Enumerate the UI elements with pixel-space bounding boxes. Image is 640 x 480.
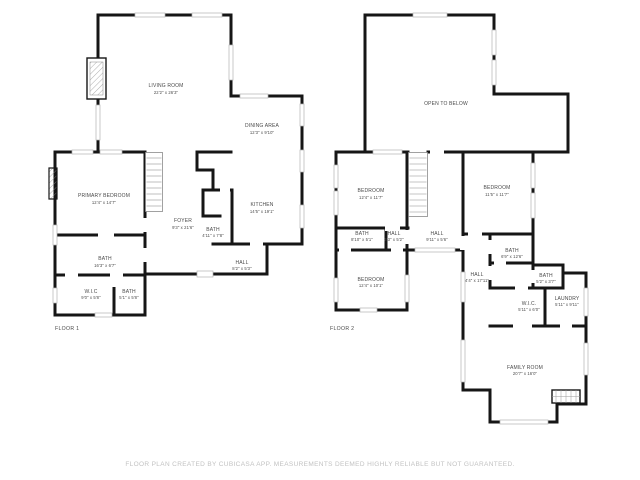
- room-dims-hall-f1: 8'2" x 5'3": [232, 266, 252, 271]
- room-label-bath-primary: BATH: [98, 256, 112, 262]
- room-dims-bath-big-f2: 6'9" x 12'6": [501, 254, 523, 259]
- room-label-bedroom-2: BEDROOM: [484, 185, 511, 191]
- room-dims-living-room: 22'2" x 26'3": [154, 90, 179, 95]
- floor-1-stairs: [146, 153, 163, 212]
- fireplace: [87, 58, 106, 99]
- room-label-dining-area: DINING AREA: [245, 123, 279, 129]
- room-label-foyer: FOYER: [174, 218, 192, 224]
- floor-2-stairs: [409, 153, 428, 217]
- family-room-stair-block: [552, 390, 580, 403]
- room-label-kitchen: KITCHEN: [251, 202, 274, 208]
- room-dims-wic-f2: 5'11" x 6'0": [518, 307, 540, 312]
- floor-plan-page: LIVING ROOM 22'2" x 26'3" DINING AREA 12…: [0, 0, 640, 480]
- room-dims-bedroom-2: 11'5" x 11'7": [485, 192, 509, 197]
- room-dims-hall-small: 3'3" x 5'2": [384, 237, 404, 242]
- floor-1-label: FLOOR 1: [55, 326, 79, 332]
- room-dims-bath-f2: 8'10" x 5'1": [351, 237, 373, 242]
- room-label-open-to-below: OPEN TO BELOW: [424, 101, 468, 107]
- floor-2-label: FLOOR 2: [330, 326, 354, 332]
- room-dims-primary-bedroom: 12'4" x 14'7": [92, 200, 117, 205]
- floor-plan-canvas: LIVING ROOM 22'2" x 26'3" DINING AREA 12…: [0, 0, 640, 480]
- room-dims-bedroom-3: 12'4" x 10'1": [359, 283, 384, 288]
- room-dims-foyer: 9'3" x 21'6": [172, 225, 194, 230]
- room-label-living-room: LIVING ROOM: [149, 83, 184, 89]
- room-dims-hall-center: 9'11" x 5'6": [426, 237, 448, 242]
- room-dims-bath-small-f1: 5'1" x 5'8": [119, 295, 139, 300]
- wall-niche: [49, 168, 57, 199]
- room-dims-bath-small-f2: 5'2" x 3'7": [536, 279, 556, 284]
- footer-disclaimer: FLOOR PLAN CREATED BY CUBICASA APP. MEAS…: [125, 461, 514, 468]
- room-dims-hall-long: 4'4" x 17'11": [465, 278, 489, 283]
- floor-2-door-openings: [339, 149, 572, 329]
- room-dims-wic-f1: 9'0" x 5'8": [81, 295, 101, 300]
- floor-2-windows: [334, 13, 588, 424]
- room-dims-bath-primary: 16'3" x 6'7": [94, 263, 116, 268]
- floor-2-plan: OPEN TO BELOW BEDROOM 12'4" x 11'7" BEDR…: [330, 13, 588, 424]
- room-dims-kitchen: 14'5" x 19'1": [250, 209, 275, 214]
- floor-1-plan: LIVING ROOM 22'2" x 26'3" DINING AREA 12…: [49, 13, 304, 332]
- room-dims-laundry: 5'11" x 9'11": [555, 302, 579, 307]
- room-dims-bedroom-1: 12'4" x 11'7": [359, 195, 383, 200]
- room-label-bedroom-1: BEDROOM: [358, 188, 385, 194]
- room-dims-family-room: 20'7" x 16'0": [513, 371, 538, 376]
- room-dims-bath-kitchen: 4'11" x 7'8": [202, 233, 224, 238]
- room-label-primary-bedroom: PRIMARY BEDROOM: [78, 193, 130, 199]
- room-dims-dining-area: 12'3" x 9'10": [250, 130, 275, 135]
